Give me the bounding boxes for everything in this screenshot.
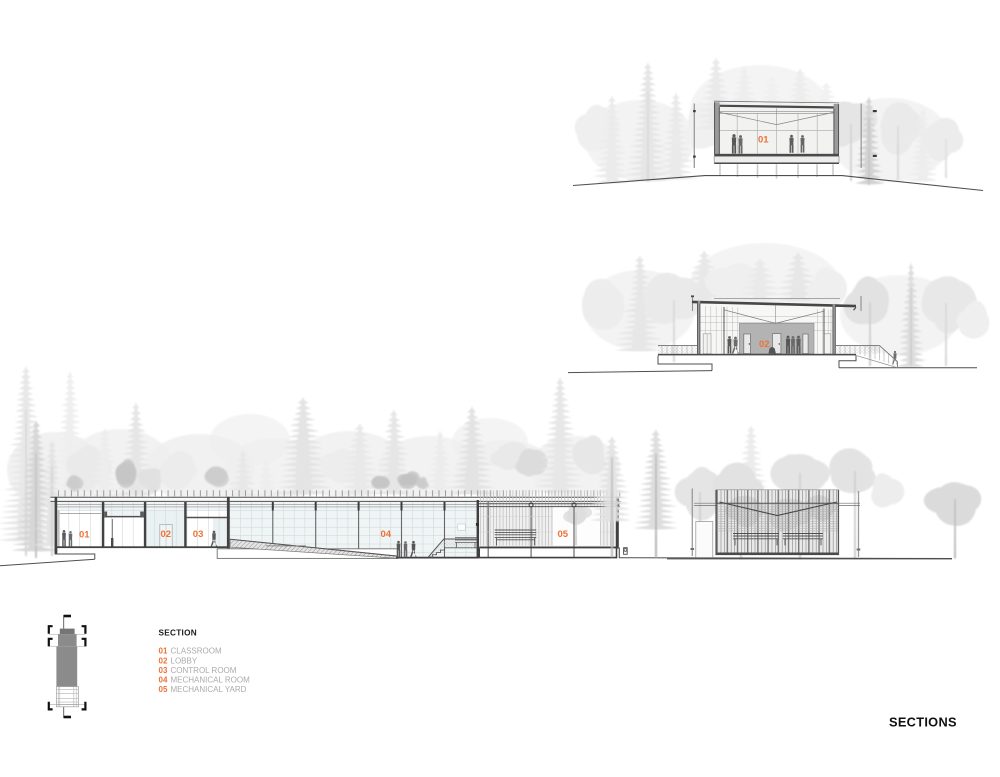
svg-text:01: 01 bbox=[159, 647, 168, 656]
svg-text:05: 05 bbox=[558, 529, 569, 540]
svg-text:05: 05 bbox=[159, 685, 168, 694]
svg-text:04: 04 bbox=[381, 529, 392, 540]
svg-text:04: 04 bbox=[159, 676, 168, 685]
svg-text:03: 03 bbox=[193, 529, 204, 540]
svg-text:LOBBY: LOBBY bbox=[171, 656, 198, 665]
svg-text:03: 03 bbox=[159, 666, 168, 675]
svg-text:CONTROL ROOM: CONTROL ROOM bbox=[171, 666, 237, 675]
svg-text:CLASSROOM: CLASSROOM bbox=[171, 647, 222, 656]
svg-text:SECTION: SECTION bbox=[159, 628, 198, 637]
svg-text:02: 02 bbox=[159, 656, 168, 665]
svg-text:SECTIONS: SECTIONS bbox=[889, 715, 957, 730]
svg-text:01: 01 bbox=[79, 529, 90, 540]
svg-text:MECHANICAL ROOM: MECHANICAL ROOM bbox=[171, 676, 251, 685]
svg-text:MECHANICAL YARD: MECHANICAL YARD bbox=[171, 685, 247, 694]
svg-text:02: 02 bbox=[759, 339, 770, 350]
svg-text:01: 01 bbox=[758, 135, 769, 146]
svg-text:02: 02 bbox=[161, 529, 172, 540]
